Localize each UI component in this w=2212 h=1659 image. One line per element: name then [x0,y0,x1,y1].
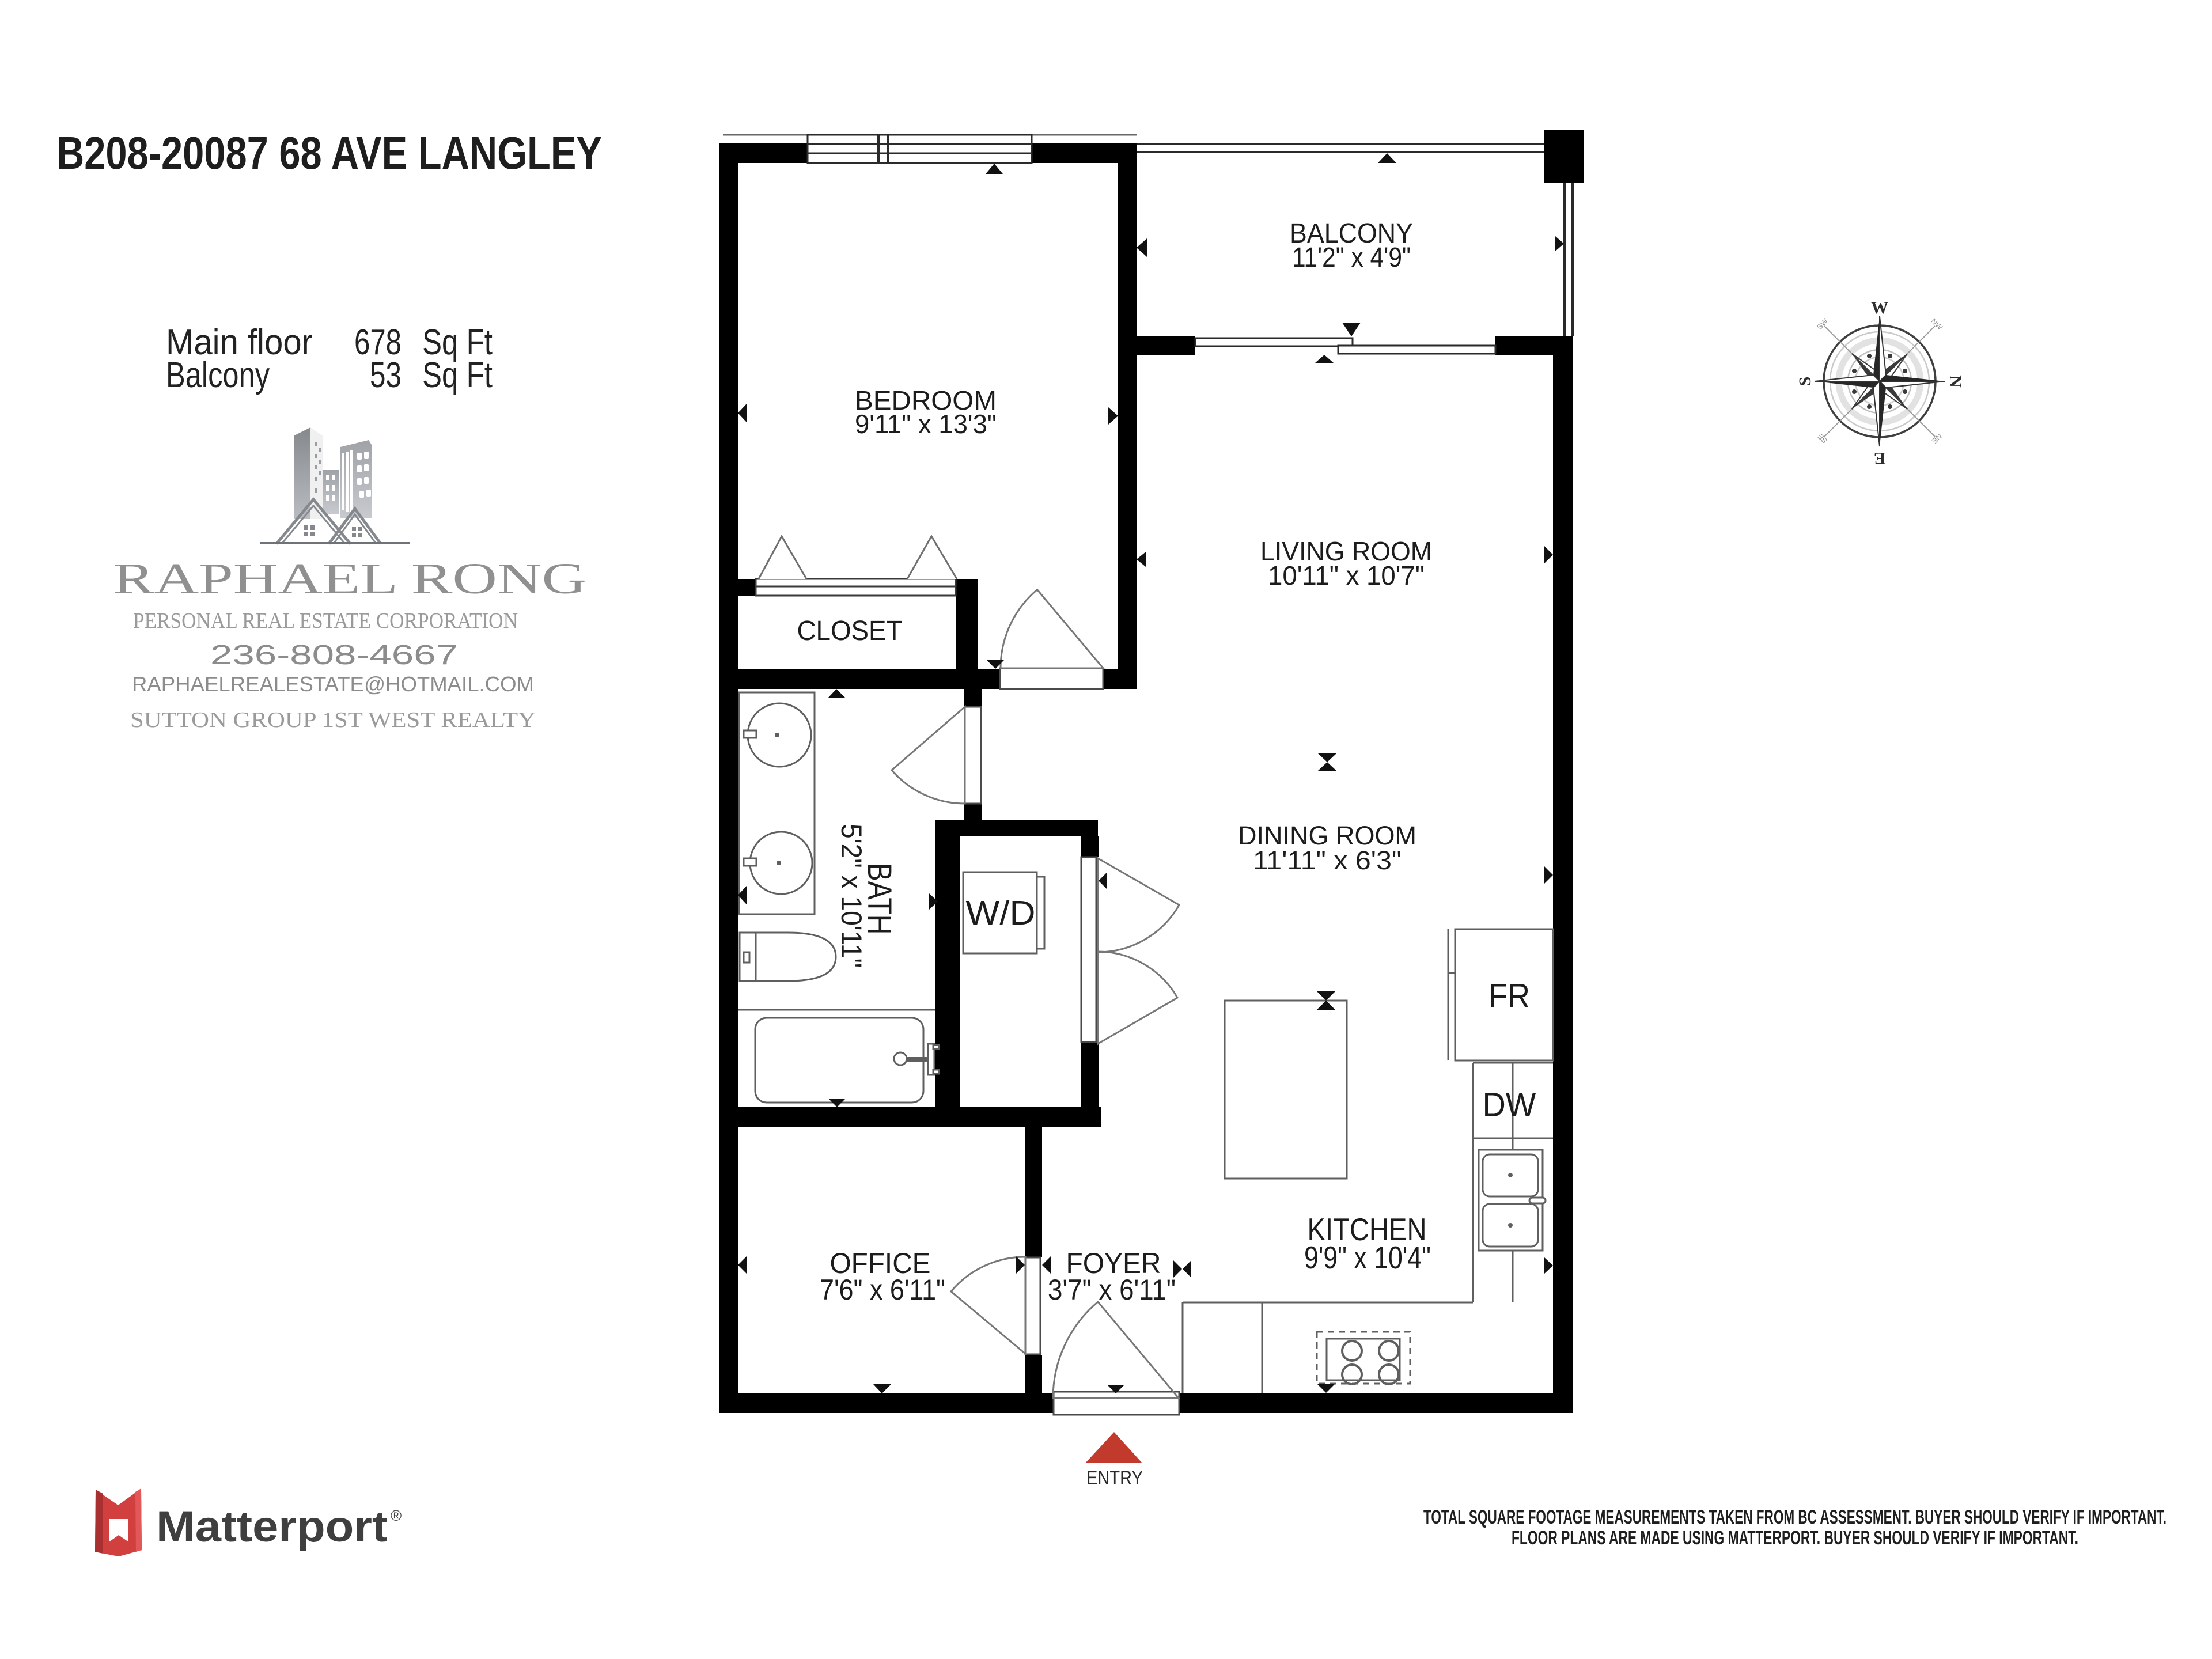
svg-text:B208-20087 68 AVE LANGLEY: B208-20087 68 AVE LANGLEY [56,127,602,179]
svg-text:S: S [1796,377,1815,387]
svg-text:53: 53 [370,355,402,395]
svg-text:SUTTON GROUP 1ST WEST REALTY: SUTTON GROUP 1ST WEST REALTY [130,708,536,732]
svg-text:10'11" x 10'7": 10'11" x 10'7" [1268,560,1425,590]
svg-text:Matterport: Matterport [156,1502,388,1551]
svg-text:7'6" x 6'11": 7'6" x 6'11" [820,1274,945,1306]
svg-text:ENTRY: ENTRY [1086,1467,1143,1489]
svg-text:11'2" x 4'9": 11'2" x 4'9" [1292,243,1411,273]
svg-text:3'7" x 6'11": 3'7" x 6'11" [1048,1274,1176,1306]
svg-text:FLOOR PLANS ARE MADE USING MAT: FLOOR PLANS ARE MADE USING MATTERPORT. B… [1512,1527,2078,1549]
svg-text:RAPHAELREALESTATE@HOTMAIL.COM: RAPHAELREALESTATE@HOTMAIL.COM [132,672,534,696]
svg-text:N: N [1946,375,1965,388]
svg-text:RAPHAEL RONG: RAPHAEL RONG [113,555,586,603]
svg-text:CLOSET: CLOSET [797,616,903,646]
svg-text:9'11" x 13'3": 9'11" x 13'3" [855,409,997,439]
svg-text:11'11" x 6'3": 11'11" x 6'3" [1253,846,1402,875]
svg-text:9'9" x 10'4": 9'9" x 10'4" [1304,1240,1431,1275]
svg-text:W/D: W/D [966,894,1036,932]
svg-text:TOTAL SQUARE FOOTAGE MEASUREME: TOTAL SQUARE FOOTAGE MEASUREMENTS TAKEN … [1423,1506,2166,1528]
svg-text:Sq Ft: Sq Ft [422,355,493,395]
svg-text:PERSONAL REAL ESTATE CORPORATI: PERSONAL REAL ESTATE CORPORATION [133,609,518,633]
svg-text:E: E [1874,449,1885,468]
svg-text:236-808-4667: 236-808-4667 [210,640,458,671]
svg-text:Balcony: Balcony [166,355,270,395]
svg-text:5'2" x 10'11": 5'2" x 10'11" [835,824,868,968]
svg-text:DW: DW [1483,1086,1536,1124]
svg-text:FR: FR [1488,977,1530,1015]
svg-text:®: ® [391,1507,402,1524]
svg-text:W: W [1871,298,1888,317]
